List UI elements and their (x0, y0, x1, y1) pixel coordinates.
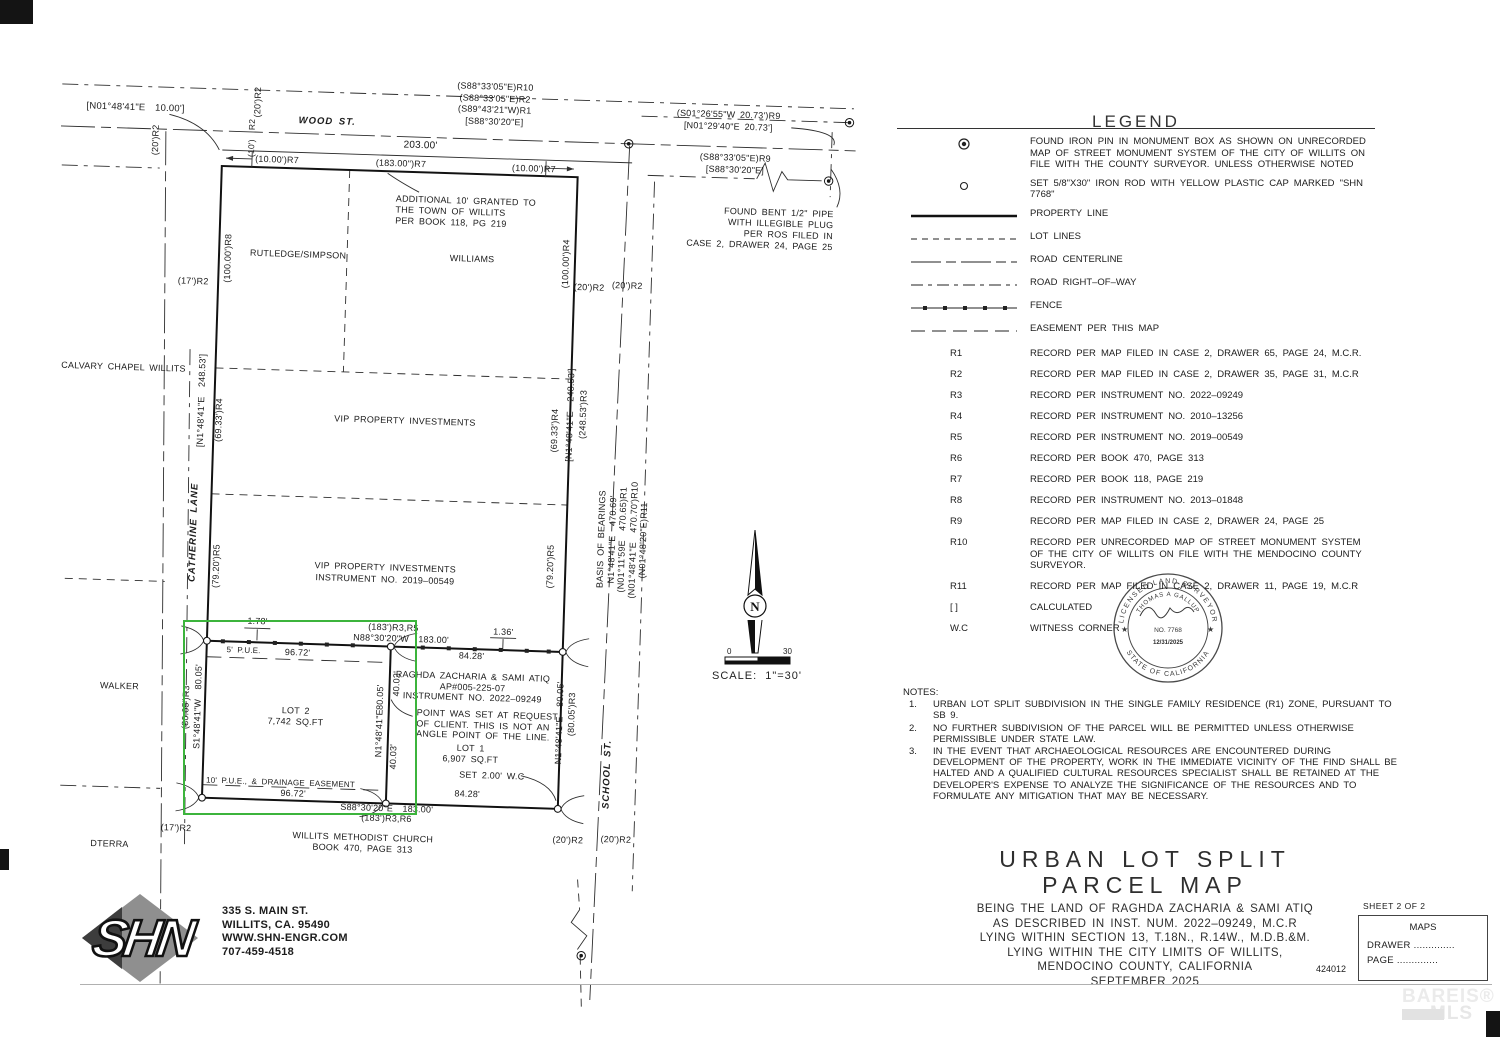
title-subtext-line: LYING WITHIN THE CITY LIMITS OF WILLITS, (955, 946, 1335, 961)
map-label-59: (17')R2 (161, 822, 192, 833)
map-label-19: (20')R2 (574, 282, 605, 293)
north-letter: N (750, 599, 760, 614)
map-label-50: SET 2.00' W.C (459, 770, 524, 783)
legend-reference-row: R11RECORD PER MAP FILED IN CASE 2, DRAWE… (897, 581, 1375, 593)
note-item: 2.NO FURTHER SUBDIVISION OF THE PARCEL W… (903, 723, 1407, 745)
legend-symbol-items: FOUND IRON PIN IN MONUMENT BOX AS SHOWN … (897, 136, 1375, 339)
shn-logo: SHN (80, 890, 225, 990)
sheet-number-label: SHEET 2 OF 2 (1363, 901, 1426, 911)
map-label-9: FOUND BENT 1/2" PIPE WITH ILLEGIBLE PLUG… (686, 205, 834, 254)
map-label-7: (S01°26'55"W 20.73')R9 [N01°29'40"E 20.7… (676, 108, 780, 134)
legend-reference-row: R7RECORD PER BOOK 118, PAGE 219 (897, 474, 1375, 486)
title-block: URBAN LOT SPLIT PARCEL MAP BEING THE LAN… (955, 846, 1335, 989)
legend-item-text: LOT LINES (1030, 231, 1375, 243)
company-address-line: 335 S. MAIN ST. (222, 905, 348, 919)
note-text: URBAN LOT SPLIT SUBDIVISION IN THE SINGL… (929, 699, 1407, 721)
found-pin-icon (897, 136, 1030, 152)
legend-item-text: FENCE (1030, 300, 1375, 312)
highlight-rectangle (183, 620, 417, 815)
scale-tick-0: 0 (727, 647, 732, 656)
legend-item: FENCE (897, 300, 1375, 316)
map-label-6: (S88°33'05"E)R10 (S88°33'05"E)R2 (S89°43… (456, 80, 534, 128)
legend-item: FOUND IRON PIN IN MONUMENT BOX AS SHOWN … (897, 136, 1375, 171)
legend-reference-text: RECORD PER MAP FILED IN CASE 2, DRAWER 6… (1030, 348, 1375, 360)
legend-item: ROAD CENTERLINE (897, 254, 1375, 270)
legend-item-text: PROPERTY LINE (1030, 208, 1375, 220)
notes-title: NOTES: (903, 687, 1407, 698)
map-label-17: (100.00')R4 (560, 239, 572, 288)
legend-reference-text: RECORD PER UNRECORDED MAP OF STREET MONU… (1030, 537, 1375, 572)
map-label-27: (248.53')R3 (577, 390, 589, 439)
sheet-bottom-rule (80, 984, 1492, 985)
notes-list: 1.URBAN LOT SPLIT SUBDIVISION IN THE SIN… (903, 699, 1407, 802)
legend-item-text: EASEMENT PER THIS MAP (1030, 323, 1375, 335)
road-centerline-icon (897, 254, 1030, 270)
map-label-25: (69.33')R4 (549, 409, 561, 453)
map-label-4: (20')R2 (252, 87, 263, 118)
note-number: 3. (903, 746, 929, 802)
map-label-53: 84.28' (454, 788, 480, 799)
lot-lines (52, 161, 608, 1011)
legend-reference-label: R11 (897, 581, 1030, 593)
map-label-10: (10.00')R7 (255, 154, 299, 166)
title-subtext-line: LYING WITHIN SECTION 13, T.18N., R.14W.,… (955, 931, 1335, 946)
map-label-62: (20')R2 (600, 834, 631, 845)
parcel-map-sheet: WOOD ST.203.00'[N01°48'41"E 10.00'](20')… (0, 0, 1500, 1037)
map-label-39: 84.28' (459, 650, 485, 661)
legend-title: LEGEND (897, 112, 1375, 132)
note-item: 1.URBAN LOT SPLIT SUBDIVISION IN THE SIN… (903, 699, 1407, 721)
easement-icon (897, 323, 1030, 339)
note-text: IN THE EVENT THAT ARCHAEOLOGICAL RESOURC… (929, 746, 1407, 802)
legend-reference-label: R7 (897, 474, 1030, 486)
legend-reference-row: R1RECORD PER MAP FILED IN CASE 2, DRAWER… (897, 348, 1375, 360)
legend-reference-label: R6 (897, 453, 1030, 465)
legend-item-text: SET 5/8"X30" IRON ROD WITH YELLOW PLASTI… (1030, 178, 1375, 201)
road-row-icon (897, 277, 1030, 293)
maps-label: MAPS (1367, 922, 1479, 933)
legend-reference-text: CALCULATED (1030, 602, 1375, 614)
note-number: 1. (903, 699, 929, 721)
legend-reference-label: R1 (897, 348, 1030, 360)
note-text: NO FURTHER SUBDIVISION OF THE PARCEL WIL… (929, 723, 1407, 745)
property-line-icon (897, 208, 1030, 224)
mls-watermark-bar (1402, 1009, 1444, 1020)
legend-reference-label: R5 (897, 432, 1030, 444)
legend-reference-row: [ ]CALCULATED (897, 602, 1375, 614)
legend-item-text: ROAD CENTERLINE (1030, 254, 1375, 266)
map-label-16: (100.00')R8 (222, 234, 234, 283)
legend-item-text: FOUND IRON PIN IN MONUMENT BOX AS SHOWN … (1030, 136, 1375, 171)
map-label-40: RAGHDA ZACHARIA & SAMI ATIQ AP#005-225-0… (395, 669, 550, 705)
legend-item: PROPERTY LINE (897, 208, 1375, 224)
map-label-12: (10.00')R7 (512, 163, 556, 175)
legend-item: EASEMENT PER THIS MAP (897, 323, 1375, 339)
legend-reference-text: RECORD PER INSTRUMENT NO. 2022–09249 (1030, 390, 1375, 402)
legend-item-text: ROAD RIGHT–OF–WAY (1030, 277, 1375, 289)
legend-panel: LEGEND FOUND IRON PIN IN MONUMENT BOX AS… (897, 112, 1375, 644)
north-tail-fill (748, 620, 755, 653)
map-label-3: (20')R2 (150, 124, 161, 155)
title-subtext-line: MENDOCINO COUNTY, CALIFORNIA (955, 960, 1335, 975)
legend-item: ROAD RIGHT–OF–WAY (897, 277, 1375, 293)
company-address: 335 S. MAIN ST.WILLITS, CA. 95490WWW.SHN… (222, 905, 348, 959)
legend-reference-row: R3RECORD PER INSTRUMENT NO. 2022–09249 (897, 390, 1375, 402)
legend-reference-label: W.C (897, 623, 1030, 635)
map-label-30: VIP PROPERTY INVESTMENTS INSTRUMENT NO. … (314, 559, 456, 587)
maps-filing-box: MAPS DRAWER .............. PAGE ........… (1358, 915, 1488, 981)
legend-reference-row: W.CWITNESS CORNER (897, 623, 1375, 635)
legend-reference-label: R3 (897, 390, 1030, 402)
legend-item: LOT LINES (897, 231, 1375, 247)
legend-reference-text: RECORD PER MAP FILED IN CASE 2, DRAWER 2… (1030, 516, 1375, 528)
legend-reference-row: R9RECORD PER MAP FILED IN CASE 2, DRAWER… (897, 516, 1375, 528)
legend-reference-label: [ ] (897, 602, 1030, 614)
title-subtext: BEING THE LAND OF RAGHDA ZACHARIA & SAMI… (955, 902, 1335, 989)
map-label-0: WOOD ST. (298, 116, 356, 128)
map-label-61: (20')R2 (552, 834, 583, 845)
map-label-13: ADDITIONAL 10' GRANTED TO THE TOWN OF WI… (395, 193, 536, 230)
map-label-57: (80.05')R3 (566, 692, 578, 736)
scale-bar (725, 657, 790, 664)
notes-block: NOTES: 1.URBAN LOT SPLIT SUBDIVISION IN … (903, 687, 1407, 802)
legend-reference-row: R2RECORD PER MAP FILED IN CASE 2, DRAWER… (897, 369, 1375, 381)
map-label-31: (79.20')R5 (544, 544, 556, 588)
map-label-58: SCHOOL ST. (602, 740, 615, 809)
drawer-row: DRAWER .............. (1367, 940, 1479, 951)
map-label-1: 203.00' (403, 140, 437, 152)
map-label-49: LOT 1 6,907 SQ.FT (442, 742, 498, 766)
note-number: 2. (903, 723, 929, 745)
title-subtext-line: AS DESCRIBED IN INST. NUM. 2022–09249, M… (955, 917, 1335, 932)
legend-item: SET 5/8"X30" IRON ROD WITH YELLOW PLASTI… (897, 178, 1375, 201)
legend-reference-label: R2 (897, 369, 1030, 381)
legend-reference-row: R4RECORD PER INSTRUMENT NO. 2010–13256 (897, 411, 1375, 423)
set-rod-icon (897, 178, 1030, 194)
map-label-11: (183.00")R7 (376, 158, 427, 170)
map-label-46: POINT WAS SET AT REQUEST OF CLIENT. THIS… (416, 707, 558, 743)
legend-record-references: R1RECORD PER MAP FILED IN CASE 2, DRAWER… (897, 348, 1375, 635)
map-title-line1: URBAN LOT SPLIT (955, 846, 1335, 872)
map-label-20: (20')R2 (612, 280, 643, 291)
map-label-36: 1.36' (493, 627, 514, 638)
map-label-29: (79.20')R5 (210, 544, 222, 588)
legend-reference-text: RECORD PER INSTRUMENT NO. 2013–01848 (1030, 495, 1375, 507)
legend-reference-row: R10RECORD PER UNRECORDED MAP OF STREET M… (897, 537, 1375, 572)
legend-reference-text: WITNESS CORNER (1030, 623, 1375, 635)
legend-reference-label: R4 (897, 411, 1030, 423)
map-label-15: WILLIAMS (450, 253, 495, 265)
map-label-60: WILLITS METHODIST CHURCH BOOK 470, PAGE … (292, 830, 433, 855)
lot-line-icon (897, 231, 1030, 247)
legend-reference-text: RECORD PER INSTRUMENT NO. 2019–00549 (1030, 432, 1375, 444)
map-label-64: WALKER (100, 680, 139, 692)
legend-reference-text: RECORD PER INSTRUMENT NO. 2010–13256 (1030, 411, 1375, 423)
map-title-line2: PARCEL MAP (955, 872, 1335, 898)
map-label-5: (10') R2 (246, 119, 258, 157)
title-subtext-line: SEPTEMBER 2025 (955, 975, 1335, 990)
legend-reference-row: R8RECORD PER INSTRUMENT NO. 2013–01848 (897, 495, 1375, 507)
scale-tick-30: 30 (783, 647, 792, 656)
title-subtext-line: BEING THE LAND OF RAGHDA ZACHARIA & SAMI… (955, 902, 1335, 917)
note-item: 3.IN THE EVENT THAT ARCHAEOLOGICAL RESOU… (903, 746, 1407, 802)
map-label-63: DTERRA (90, 838, 129, 850)
legend-reference-text: RECORD PER MAP FILED IN CASE 2, DRAWER 3… (1030, 369, 1375, 381)
legend-reference-label: R9 (897, 516, 1030, 528)
legend-reference-text: RECORD PER BOOK 118, PAGE 219 (1030, 474, 1375, 486)
company-address-line: WWW.SHN-ENGR.COM (222, 932, 348, 946)
company-address-line: WILLITS, CA. 95490 (222, 919, 348, 933)
company-address-line: 707-459-4518 (222, 946, 348, 960)
page-row: PAGE .............. (1367, 955, 1479, 966)
fence-icon (897, 300, 1030, 316)
map-label-8: (S88°33'05"E)R9 [S88°30'20"E] (699, 152, 771, 177)
legend-reference-row: R5RECORD PER INSTRUMENT NO. 2019–00549 (897, 432, 1375, 444)
legend-reference-text: RECORD PER BOOK 470, PAGE 313 (1030, 453, 1375, 465)
legend-reference-label: R8 (897, 495, 1030, 507)
logo-letters: SHN (89, 910, 200, 968)
scale-label: SCALE: 1"=30' (712, 670, 802, 682)
map-label-18: (17')R2 (178, 275, 209, 286)
job-number: 424012 (1316, 964, 1346, 974)
legend-reference-label: R10 (897, 537, 1030, 572)
north-arrow-and-scale: N 0 30 SCALE: 1"=30' (690, 515, 840, 695)
map-label-32: BASIS OF BEARINGS N1°48'41"E 470.69' (N0… (594, 481, 650, 599)
legend-reference-text: RECORD PER MAP FILED IN CASE 2, DRAWER 1… (1030, 581, 1375, 593)
map-label-23: (69.33')R4 (213, 398, 225, 442)
legend-reference-row: R6RECORD PER BOOK 470, PAGE 313 (897, 453, 1375, 465)
